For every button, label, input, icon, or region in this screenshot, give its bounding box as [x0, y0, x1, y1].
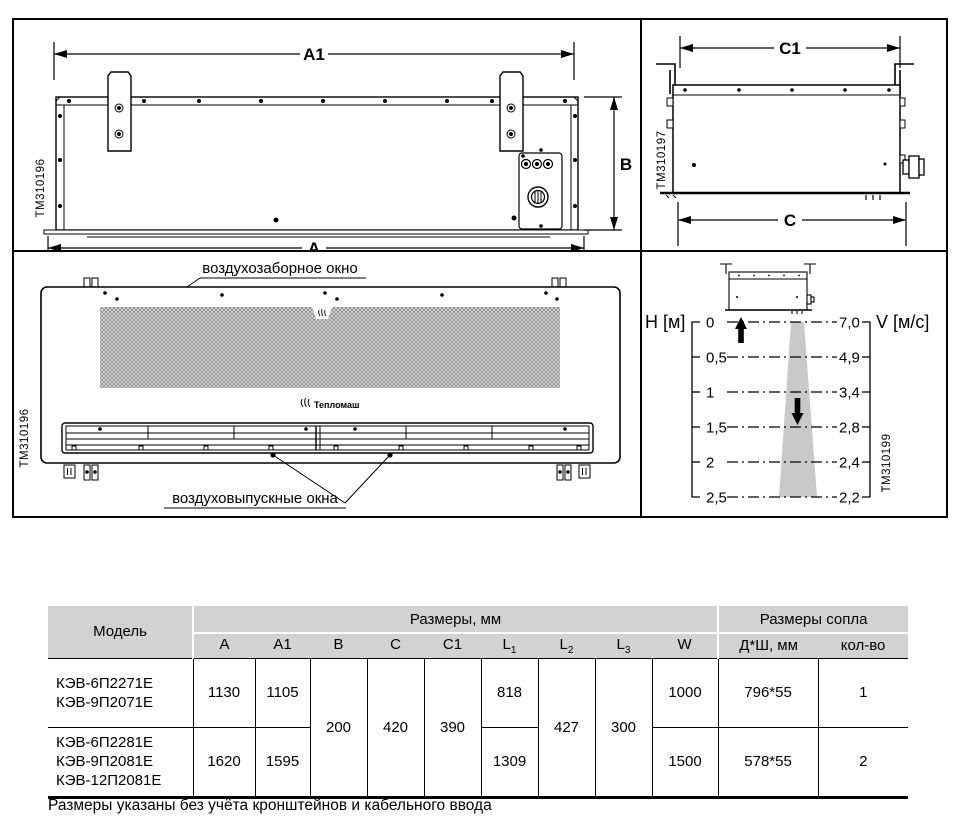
svg-text:2,5: 2,5	[706, 490, 727, 507]
flow-arrow-up	[735, 317, 747, 343]
svg-text:7,0: 7,0	[839, 315, 860, 332]
col-header-w: W	[652, 633, 718, 658]
col-header-nozzle-size: Д*Ш, мм	[718, 633, 818, 658]
svg-text:3,4: 3,4	[839, 385, 860, 402]
table-footnote: Размеры указаны без учёта кронштейнов и …	[48, 797, 492, 815]
model-names: КЭВ-6П2281Е КЭВ-9П2081Е КЭВ-12П2081Е	[48, 727, 193, 797]
dim-b	[584, 97, 622, 230]
col-header-nozzle-count: кол-во	[818, 633, 908, 658]
connection-plate	[519, 148, 562, 229]
value-l3: 300	[595, 658, 652, 797]
panel-side-view: C1	[642, 20, 946, 250]
airflow-velocity-chart: 0 0,5 1 1,5 2 2,5 7,0 4,9 3,4 2,8 2,4 2,…	[642, 252, 946, 514]
unit-body	[667, 85, 905, 193]
rear-view-drawing: A1	[14, 20, 640, 250]
outlet-windows-label: воздуховыпускные окна	[172, 490, 338, 507]
dim-a1-label: A1	[303, 45, 325, 64]
col-header-c1: C1	[424, 633, 481, 658]
drawing-code: TM310197	[656, 131, 668, 190]
intake-window-label: воздухозаборное окно	[202, 260, 357, 277]
dim-a-label: A	[308, 239, 320, 250]
col-header-l3: L3	[595, 633, 652, 658]
v-axis-label: V [м/с]	[876, 312, 929, 332]
value-c: 420	[367, 658, 424, 797]
svg-text:0: 0	[706, 315, 714, 332]
outlet-leader-dot	[270, 452, 275, 457]
bottom-flange	[660, 193, 910, 200]
value-a: 1130	[193, 658, 255, 727]
front-view-drawing: воздухозаборное окно	[14, 252, 640, 514]
group-header-dimensions: Размеры, мм	[193, 606, 718, 633]
h-axis-bracket	[692, 322, 700, 497]
value-l2: 427	[538, 658, 595, 797]
svg-text:1: 1	[706, 385, 714, 402]
col-header-a1: A1	[255, 633, 310, 658]
value-l1: 1309	[481, 727, 538, 797]
table-row: КЭВ-6П2271Е КЭВ-9П2071Е 1130 1105 200 42…	[48, 658, 908, 727]
svg-text:2,4: 2,4	[839, 455, 860, 472]
col-header-b: B	[310, 633, 367, 658]
panel-airflow-chart: 0 0,5 1 1,5 2 2,5 7,0 4,9 3,4 2,8 2,4 2,…	[642, 252, 946, 514]
v-tick-labels: 7,0 4,9 3,4 2,8 2,4 2,2	[839, 315, 860, 507]
intake-window-hatch	[100, 307, 560, 388]
dim-c1-label: C1	[779, 39, 801, 58]
side-view-drawing: C1	[642, 20, 946, 250]
value-l1: 818	[481, 658, 538, 727]
value-c1: 390	[424, 658, 481, 797]
dim-c-label: C	[784, 211, 796, 230]
v-axis-bracket	[862, 322, 870, 497]
panel-rear-view: A1	[14, 20, 640, 250]
value-b: 200	[310, 658, 367, 797]
mini-unit-drawing	[720, 264, 816, 314]
col-header-a: A	[193, 633, 255, 658]
svg-text:1,5: 1,5	[706, 420, 727, 437]
datasheet-page: A1	[0, 0, 961, 834]
value-w: 1000	[652, 658, 718, 727]
value-nozzle-size: 796*55	[718, 658, 818, 727]
group-header-nozzle: Размеры сопла	[718, 606, 908, 633]
panel-front-view: воздухозаборное окно	[14, 252, 640, 514]
value-a1: 1595	[255, 727, 310, 797]
h-axis-label: H [м]	[645, 312, 685, 332]
dimensions-table: Модель Размеры, мм Размеры сопла A A1 B …	[48, 606, 908, 799]
value-nozzle-count: 2	[818, 727, 908, 797]
value-w: 1500	[652, 727, 718, 797]
col-header-l2: L2	[538, 633, 595, 658]
bottom-clips	[64, 465, 590, 480]
value-nozzle-size: 578*55	[718, 727, 818, 797]
value-a1: 1105	[255, 658, 310, 727]
outlet-leader-dot	[387, 452, 392, 457]
col-header-model: Модель	[48, 606, 193, 658]
cable-gland	[903, 156, 924, 178]
svg-text:0,5: 0,5	[706, 350, 727, 367]
svg-text:4,9: 4,9	[839, 350, 860, 367]
col-header-c: C	[367, 633, 424, 658]
svg-text:2: 2	[706, 455, 714, 472]
svg-text:2,2: 2,2	[839, 490, 860, 507]
drawing-code: TM310196	[35, 159, 47, 218]
top-clips	[84, 278, 566, 287]
value-nozzle-count: 1	[818, 658, 908, 727]
drawings-frame: A1	[12, 18, 948, 518]
col-header-l1: L1	[481, 633, 538, 658]
value-a: 1620	[193, 727, 255, 797]
drawing-code: TM310199	[881, 434, 893, 493]
teplomash-logo-text: Тепломаш	[314, 400, 360, 410]
dim-b-label: B	[620, 155, 632, 174]
drawing-code: TM310196	[19, 409, 31, 468]
svg-text:2,8: 2,8	[839, 420, 860, 437]
h-tick-labels: 0 0,5 1 1,5 2 2,5	[706, 315, 727, 507]
model-names: КЭВ-6П2271Е КЭВ-9П2071Е	[48, 658, 193, 727]
